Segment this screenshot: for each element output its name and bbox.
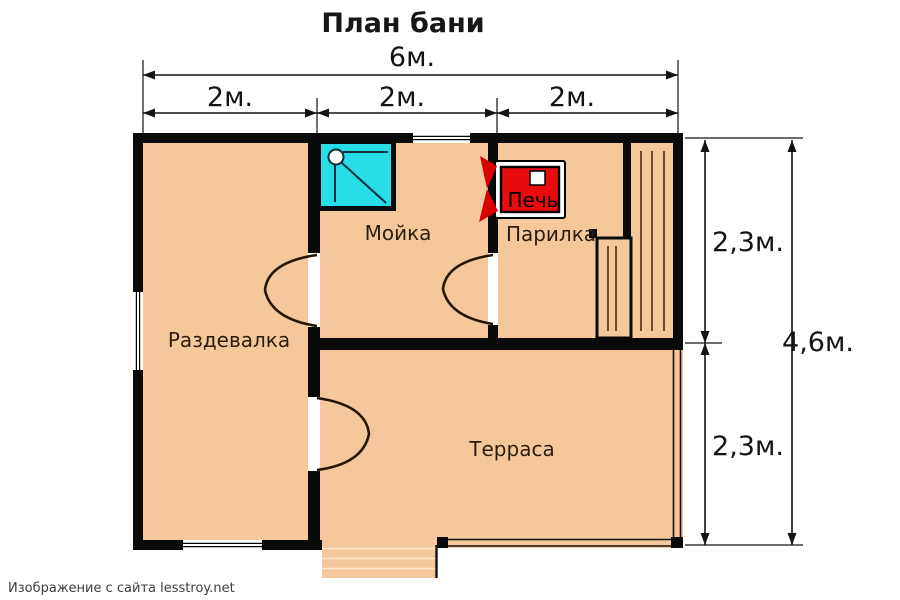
dim-col-1: 2м. [207, 82, 253, 113]
page-title: План бани [321, 8, 484, 39]
window-left [133, 292, 143, 370]
terrace-corner-post [671, 537, 683, 548]
floor-plan-image: Печь Раздевалка Мойка Парилка Терраса 6м… [0, 0, 900, 600]
door-gap-dressing-terrace [308, 397, 320, 471]
window-top [413, 133, 470, 143]
floor-plan-svg: Печь Раздевалка Мойка Парилка Терраса 6м… [0, 0, 900, 600]
shower-unit [316, 139, 396, 211]
dim-total-width: 6м. [389, 42, 435, 73]
dim-height-bottom: 2,3м. [712, 431, 784, 462]
dim-height-top: 2,3м. [712, 227, 784, 258]
wall-top [133, 133, 683, 143]
window-bottom [183, 540, 262, 550]
stove-label: Печь [508, 188, 559, 212]
wall-right [673, 133, 683, 350]
dim-col-3: 2м. [549, 82, 595, 113]
dimensions-right: 2,3м. 2,3м. 4,6м. [685, 138, 854, 545]
stove: Печь [495, 161, 565, 218]
wall-middle [308, 338, 683, 350]
steam-room-label: Парилка [506, 222, 596, 246]
dimensions-top: 6м. 2м. 2м. 2м. [143, 42, 678, 133]
door-gap-washing-steam [488, 253, 498, 325]
stove-chimney-icon [530, 171, 545, 185]
terrace-step-post [437, 537, 448, 548]
dim-total-height: 4,6м. [782, 327, 854, 358]
washing-room-label: Мойка [365, 221, 432, 245]
dim-col-2: 2м. [379, 82, 425, 113]
dressing-room-label: Раздевалка [168, 328, 290, 352]
terrace-label: Терраса [468, 437, 554, 461]
watermark: Изображение с сайта lesstroy.net [8, 581, 235, 596]
door-gap-dressing-washing [308, 253, 320, 327]
shower-head-icon [329, 150, 344, 165]
